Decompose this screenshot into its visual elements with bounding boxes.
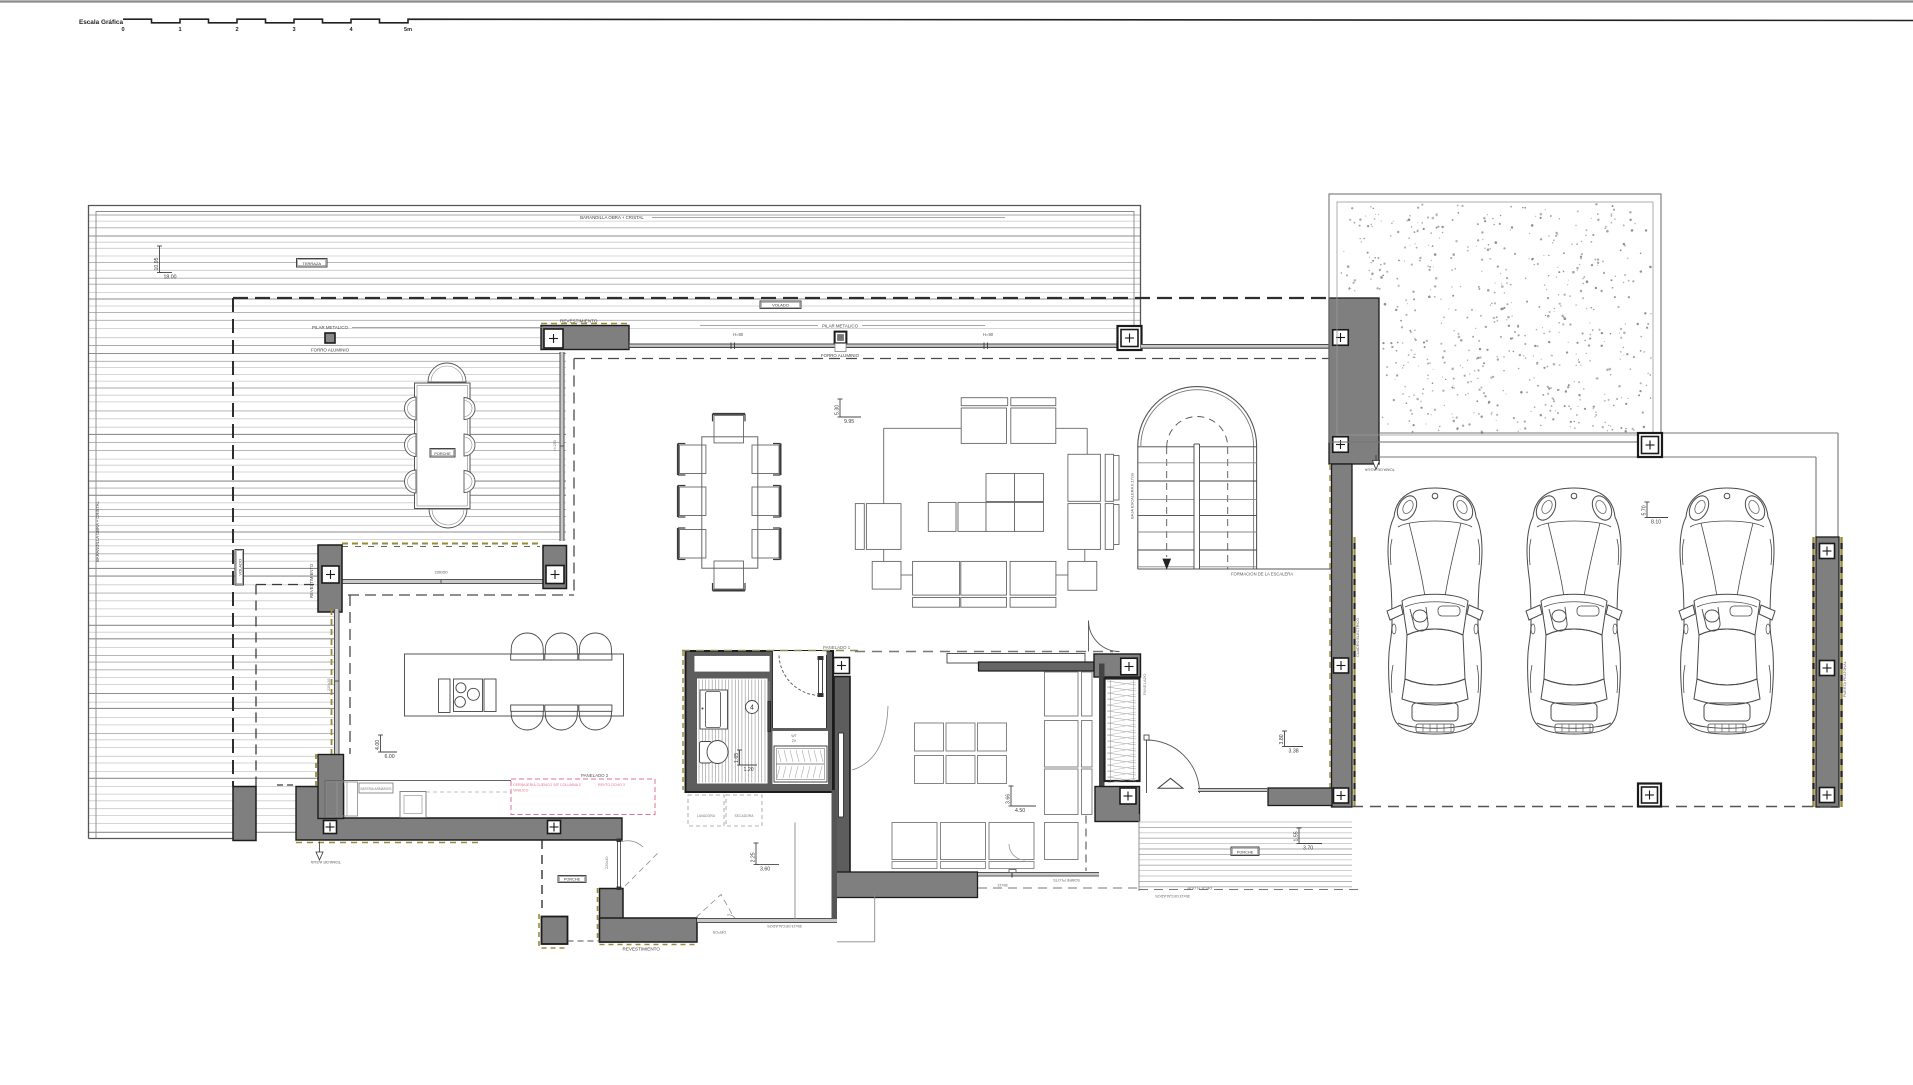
svg-text:2V: 2V <box>792 739 797 743</box>
svg-text:5.30: 5.30 <box>835 405 841 415</box>
svg-text:3.80: 3.80 <box>1279 734 1285 744</box>
svg-text:3.70: 3.70 <box>1303 846 1313 852</box>
svg-text:REVESTIMIENTO: REVESTIMIENTO <box>309 563 314 598</box>
svg-text:FORMACION DE LA ESCALERA: FORMACION DE LA ESCALERA <box>1231 572 1293 577</box>
svg-text:220x26: 220x26 <box>327 679 331 691</box>
svg-text:4: 4 <box>750 705 754 712</box>
svg-text:6.00: 6.00 <box>385 754 395 760</box>
svg-text:18.00: 18.00 <box>164 275 177 281</box>
svg-text:0: 0 <box>121 27 124 33</box>
svg-text:COLUMNA 2: COLUMNA 2 <box>560 783 581 787</box>
svg-text:9.95: 9.95 <box>844 419 854 425</box>
svg-text:DECK FLOOR: DECK FLOOR <box>1187 886 1212 890</box>
svg-text:VOLADO: VOLADO <box>772 302 789 307</box>
svg-text:PANELADO 2: PANELADO 2 <box>581 773 609 778</box>
svg-text:1: 1 <box>178 27 181 33</box>
svg-text:SOBRE PLOTS: SOBRE PLOTS <box>1053 878 1080 882</box>
svg-text:3: 3 <box>292 27 295 33</box>
svg-text:30x13 DECALADOS: 30x13 DECALADOS <box>767 924 802 928</box>
svg-text:VINILICO: VINILICO <box>513 789 529 793</box>
svg-text:CUADRO ELECTRICO: CUADRO ELECTRICO <box>1356 618 1360 657</box>
svg-text:PORCHE: PORCHE <box>434 452 451 456</box>
svg-text:5.70: 5.70 <box>1642 505 1648 515</box>
svg-text:FORRO ALUMINIO: FORRO ALUMINIO <box>311 348 350 353</box>
svg-text:WT: WT <box>791 734 797 738</box>
svg-text:PILAR METALICO: PILAR METALICO <box>312 325 349 330</box>
svg-text:BAJA ESCALERA h:17cm: BAJA ESCALERA h:17cm <box>1130 472 1135 519</box>
svg-text:230x50: 230x50 <box>434 570 448 575</box>
svg-text:H=90: H=90 <box>733 332 744 337</box>
svg-text:3.38: 3.38 <box>1289 749 1299 755</box>
svg-text:H=250: H=250 <box>553 440 557 451</box>
svg-text:LAVADORA: LAVADORA <box>697 814 716 818</box>
svg-text:TOMA DE AGUA: TOMA DE AGUA <box>1365 468 1395 473</box>
svg-text:H=90: H=90 <box>983 332 994 337</box>
svg-text:4.50: 4.50 <box>1015 808 1025 814</box>
svg-text:1.55: 1.55 <box>1294 831 1300 841</box>
svg-text:1.20: 1.20 <box>744 767 754 773</box>
svg-text:30x13 DECALADOS: 30x13 DECALADOS <box>1155 894 1190 898</box>
svg-text:Escala Gráfica: Escala Gráfica <box>79 19 124 26</box>
svg-text:PUERTA PEATONAL: PUERTA PEATONAL <box>1843 661 1847 697</box>
svg-text:PORCHE: PORCHE <box>564 877 581 881</box>
svg-text:SECADORA: SECADORA <box>734 814 754 818</box>
svg-text:BARANDILLA OBRA + CRISTAL: BARANDILLA OBRA + CRISTAL <box>580 215 644 220</box>
svg-text:5m: 5m <box>404 27 412 33</box>
svg-text:REVESTIMIENTO: REVESTIMIENTO <box>623 947 661 952</box>
svg-text:DEPOS: DEPOS <box>712 930 726 934</box>
svg-text:PORCHE: PORCHE <box>1237 850 1254 854</box>
svg-text:PANELADO: PANELADO <box>1142 674 1147 696</box>
svg-text:VOLADO: VOLADO <box>237 559 242 576</box>
svg-text:8.10: 8.10 <box>1651 520 1661 526</box>
svg-text:4.00: 4.00 <box>375 740 381 750</box>
svg-text:PANELADO 1: PANELADO 1 <box>823 645 851 650</box>
svg-text:TOMA DE AGUA: TOMA DE AGUA <box>311 860 341 865</box>
svg-text:TERRAZA: TERRAZA <box>302 261 321 266</box>
svg-text:2: 2 <box>235 27 238 33</box>
svg-text:3.60: 3.60 <box>760 866 770 872</box>
svg-text:220x40: 220x40 <box>605 857 609 869</box>
svg-text:PILAR METALICO: PILAR METALICO <box>822 324 859 329</box>
svg-text:10.95: 10.95 <box>154 257 160 270</box>
svg-text:30x13: 30x13 <box>998 883 1008 887</box>
svg-text:1.65: 1.65 <box>734 753 740 763</box>
svg-text:3.66: 3.66 <box>1006 794 1012 804</box>
svg-text:REVESTIMIENTO: REVESTIMIENTO <box>560 319 598 324</box>
svg-text:BARANDILLA OBRA + CRISTAL: BARANDILLA OBRA + CRISTAL <box>95 501 100 562</box>
svg-text:BATERIA ARMARIOS: BATERIA ARMARIOS <box>361 787 392 791</box>
svg-text:FORRO ALUMINIO: FORRO ALUMINIO <box>821 353 860 358</box>
svg-text:CERRAJERIA CUENCO S/E: CERRAJERIA CUENCO S/E <box>513 783 560 787</box>
svg-text:REVTO DCHO 3: REVTO DCHO 3 <box>598 783 625 787</box>
svg-text:2.25: 2.25 <box>751 852 757 862</box>
